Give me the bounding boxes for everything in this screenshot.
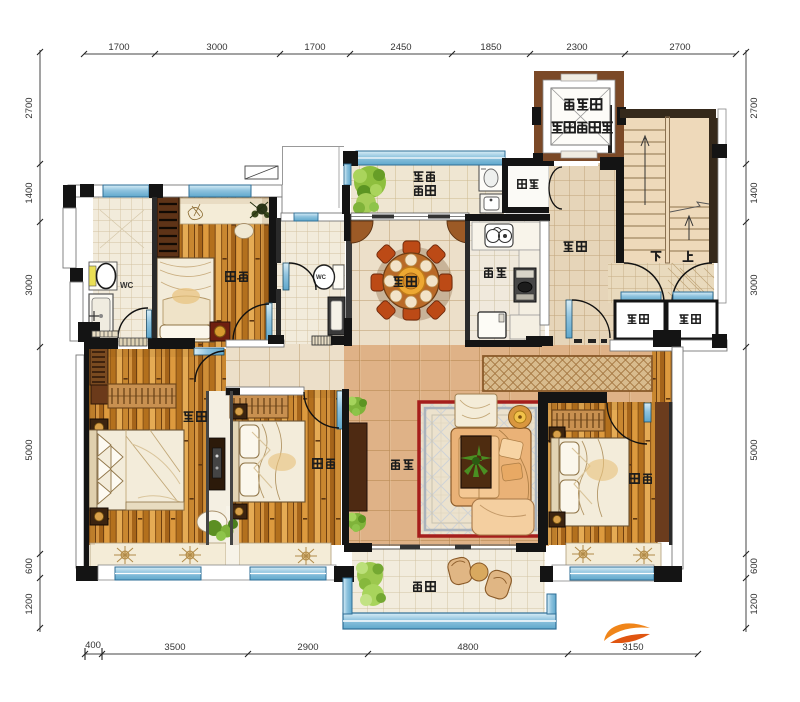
svg-text:4800: 4800	[457, 642, 478, 653]
svg-text:2700: 2700	[749, 97, 760, 118]
svg-text:2700: 2700	[24, 97, 35, 118]
svg-text:2900: 2900	[297, 642, 318, 653]
svg-text:2700: 2700	[669, 42, 690, 53]
svg-text:3000: 3000	[749, 274, 760, 295]
svg-text:1400: 1400	[24, 182, 35, 203]
svg-text:WC: WC	[316, 275, 327, 281]
svg-text:2300: 2300	[566, 42, 587, 53]
svg-text:5000: 5000	[24, 439, 35, 460]
svg-text:1200: 1200	[749, 593, 760, 614]
svg-text:WC: WC	[120, 281, 134, 290]
svg-text:3500: 3500	[164, 642, 185, 653]
svg-text:2450: 2450	[390, 42, 411, 53]
svg-text:1700: 1700	[304, 42, 325, 53]
svg-text:3000: 3000	[24, 274, 35, 295]
svg-text:1700: 1700	[108, 42, 129, 53]
svg-text:3150: 3150	[622, 642, 643, 653]
svg-text:1850: 1850	[480, 42, 501, 53]
svg-text:3000: 3000	[206, 42, 227, 53]
svg-text:1200: 1200	[24, 593, 35, 614]
svg-text:1400: 1400	[749, 182, 760, 203]
svg-text:400: 400	[85, 640, 101, 651]
svg-text:600: 600	[749, 558, 760, 574]
svg-text:5000: 5000	[749, 439, 760, 460]
svg-text:600: 600	[24, 558, 35, 574]
